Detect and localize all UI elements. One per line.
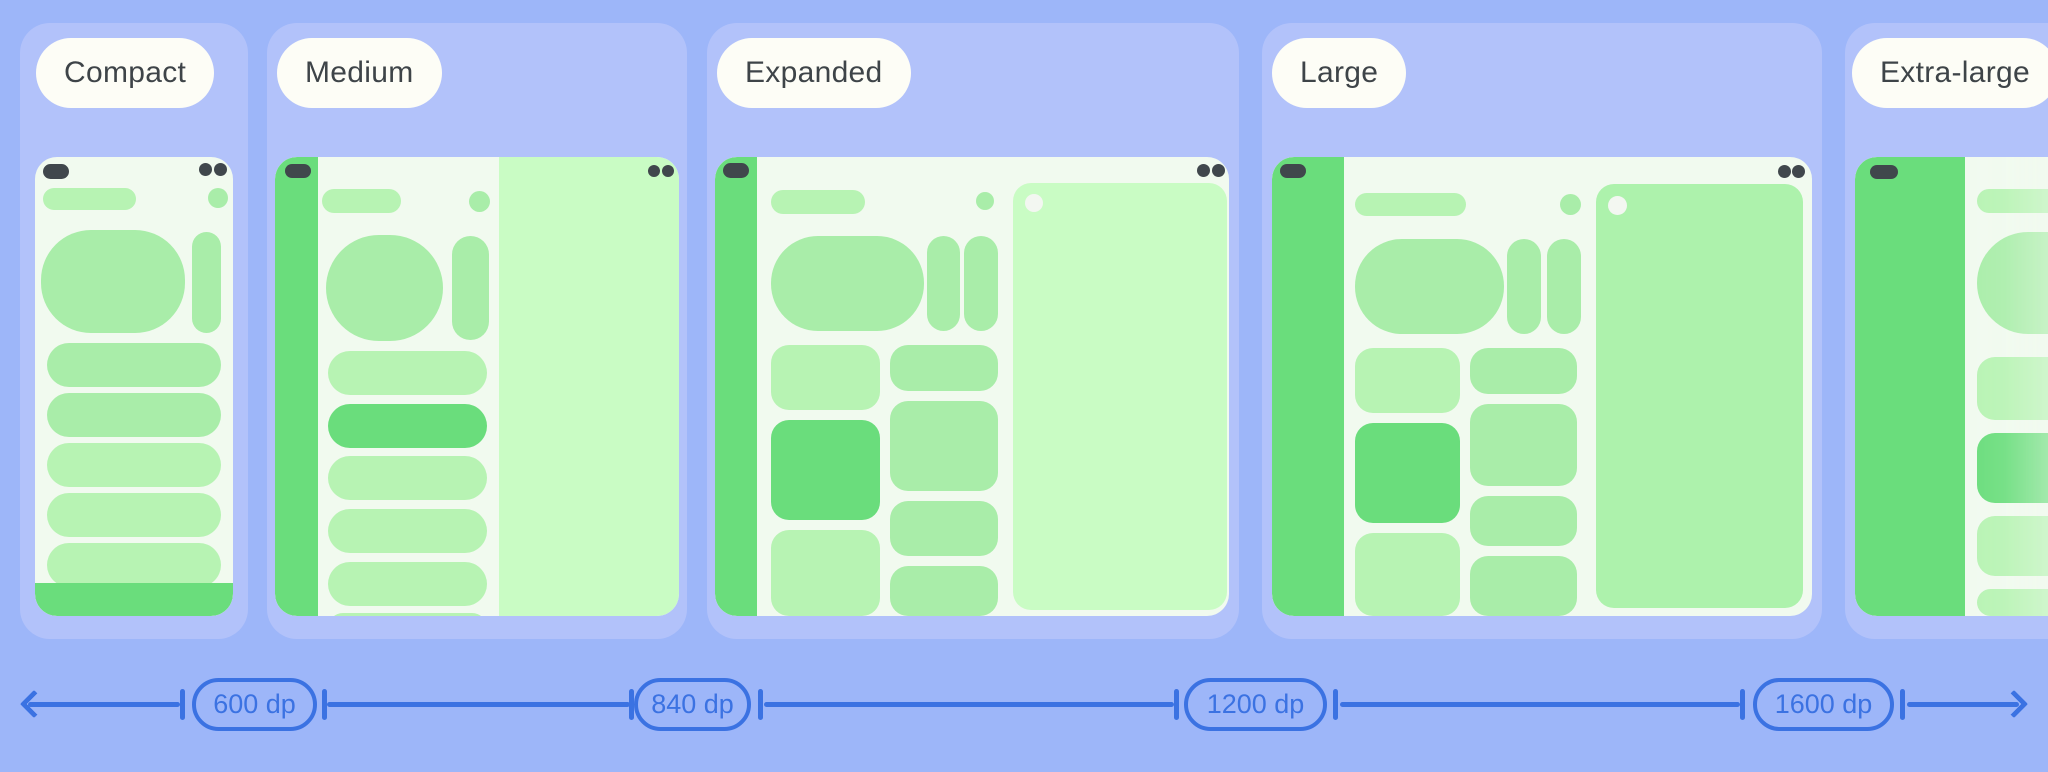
card-compact: Compact (20, 23, 248, 639)
detail-avatar-circle (1025, 194, 1043, 212)
card-expanded: Expanded (707, 23, 1239, 639)
grid-tile (771, 345, 880, 410)
ruler-line-segment (764, 702, 1174, 707)
size-class-label-large: Large (1272, 38, 1406, 108)
side-action-pill (1547, 239, 1581, 334)
list-item-pill (47, 543, 221, 587)
size-class-label-text: Medium (305, 56, 414, 90)
grid-tile (771, 530, 880, 616)
nav-rail (275, 157, 318, 616)
window-size-classes-diagram: Compact Medium (0, 0, 2048, 772)
window-dot-icon (1212, 164, 1225, 177)
ruler-line-segment (1340, 702, 1740, 707)
size-class-label-text: Expanded (745, 56, 883, 90)
card-medium: Medium (267, 23, 687, 639)
search-bar-pill (322, 189, 401, 213)
faded-content-region (1965, 157, 2048, 616)
ruler-tick (758, 689, 763, 720)
breakpoint-pill-1600: 1600 dp (1753, 678, 1894, 731)
side-action-pill (192, 232, 221, 333)
grid-tile (1470, 556, 1577, 616)
detail-avatar-circle (1608, 196, 1627, 215)
status-bar-pill (43, 164, 69, 179)
bottom-bar (35, 583, 233, 616)
grid-tile (890, 501, 998, 556)
list-item-pill (328, 509, 487, 553)
compact-window-mockup (35, 157, 233, 616)
list-item-pill (47, 443, 221, 487)
large-window-mockup (1272, 157, 1812, 616)
ruler-tick (1333, 689, 1338, 720)
search-bar-pill (43, 188, 136, 210)
breakpoint-label: 1600 dp (1775, 689, 1873, 720)
detail-pane (499, 157, 679, 616)
list-item-pill (47, 493, 221, 537)
nav-drawer-panel (1272, 157, 1344, 616)
grid-tile (890, 401, 998, 491)
search-bar-pill (1355, 193, 1466, 216)
breakpoint-label: 1200 dp (1207, 689, 1305, 720)
side-action-pill (452, 236, 489, 340)
size-class-label-text: Large (1300, 56, 1378, 90)
grid-tile (1470, 404, 1577, 486)
hero-media-block (771, 236, 924, 331)
avatar-circle (1560, 194, 1581, 215)
ruler-tick (1740, 689, 1745, 720)
size-class-label-text: Compact (64, 56, 186, 90)
list-item-pill (47, 343, 221, 387)
size-class-label-text: Extra-large (1880, 56, 2030, 90)
breakpoint-pill-600: 600 dp (192, 678, 317, 731)
grid-tile (1470, 496, 1577, 546)
window-dot-icon (214, 163, 227, 176)
arrow-right-icon (2000, 690, 2028, 718)
window-dot-icon (648, 165, 660, 177)
grid-tile (1355, 348, 1460, 413)
status-bar-pill (723, 163, 749, 178)
window-dot-icon (1197, 164, 1210, 177)
nav-rail (715, 157, 757, 616)
list-item-pill (328, 351, 487, 395)
grid-tile (1355, 533, 1460, 616)
status-bar-pill (1870, 165, 1898, 179)
ruler-tick (1900, 689, 1905, 720)
size-class-label-compact: Compact (36, 38, 214, 108)
window-dot-icon (199, 163, 212, 176)
status-bar-pill (1280, 164, 1306, 178)
selected-grid-tile (1977, 433, 2048, 503)
avatar-circle (976, 192, 994, 210)
selected-list-item-pill (328, 404, 487, 448)
grid-tile (1977, 516, 2048, 576)
expanded-window-mockup (715, 157, 1229, 616)
list-item-pill (47, 393, 221, 437)
window-dot-icon (1778, 165, 1791, 178)
selected-grid-tile (1355, 423, 1460, 523)
ruler-line-segment (327, 702, 630, 707)
card-extra-large: Extra-large (1845, 23, 2048, 639)
medium-window-mockup (275, 157, 679, 616)
size-class-label-extra-large: Extra-large (1852, 38, 2048, 108)
breakpoint-pill-1200: 1200 dp (1184, 678, 1327, 731)
breakpoint-label: 840 dp (651, 689, 734, 720)
grid-tile (1470, 348, 1577, 394)
selected-grid-tile (771, 420, 880, 520)
list-item-pill (328, 613, 487, 616)
hero-media-block (326, 235, 443, 341)
hero-media-block (1355, 239, 1504, 334)
avatar-circle (208, 188, 228, 208)
grid-tile (890, 566, 998, 616)
side-action-pill (927, 236, 960, 331)
side-action-pill (1507, 239, 1541, 334)
detail-pane (1596, 184, 1803, 608)
search-bar-pill (771, 190, 865, 214)
grid-tile (1977, 357, 2048, 420)
window-dot-icon (1792, 165, 1805, 178)
size-class-label-medium: Medium (277, 38, 442, 108)
list-item-pill (328, 456, 487, 500)
list-item-pill (328, 562, 487, 606)
nav-drawer-panel (1855, 157, 1965, 616)
breakpoint-pill-840: 840 dp (634, 678, 751, 731)
window-dot-icon (662, 165, 674, 177)
search-bar-pill (1977, 189, 2048, 213)
size-class-label-expanded: Expanded (717, 38, 911, 108)
ruler-tick (1174, 689, 1179, 720)
grid-tile (890, 345, 998, 391)
extra-large-window-mockup (1855, 157, 2048, 616)
breakpoint-label: 600 dp (213, 689, 296, 720)
ruler-line-segment (28, 702, 180, 707)
grid-tile (1977, 589, 2048, 616)
status-bar-pill (285, 164, 311, 178)
ruler-tick (180, 689, 185, 720)
hero-media-block (1977, 232, 2048, 334)
hero-media-block (41, 230, 185, 333)
side-action-pill (964, 236, 998, 331)
detail-pane (1013, 183, 1227, 610)
avatar-circle (469, 191, 490, 212)
card-large: Large (1262, 23, 1822, 639)
